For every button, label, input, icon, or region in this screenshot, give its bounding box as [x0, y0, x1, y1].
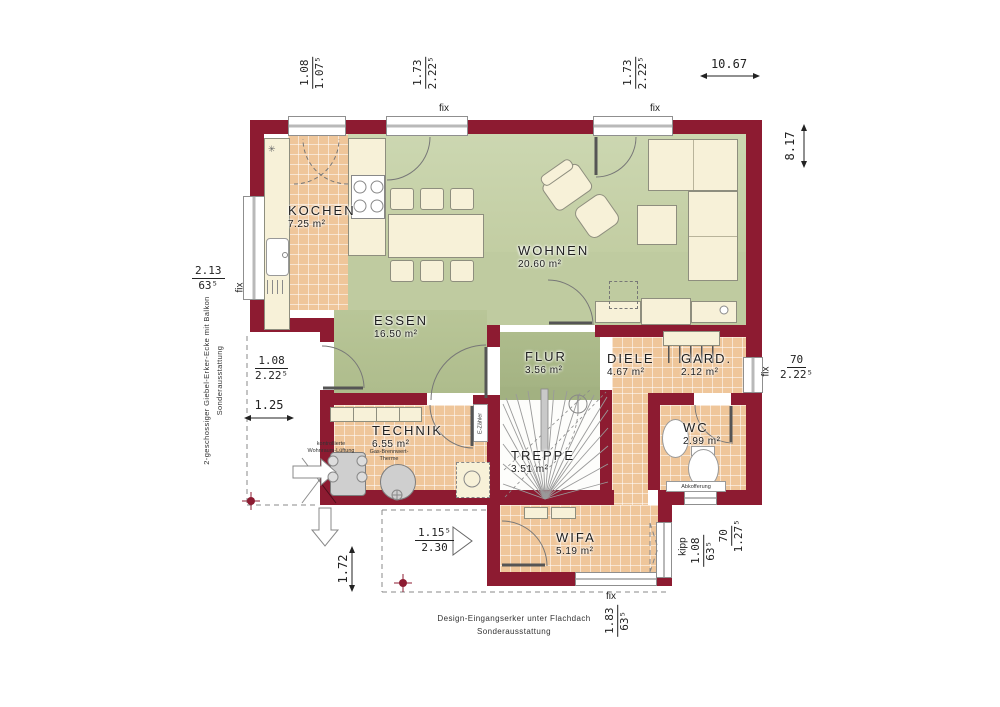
- electric-meter-label: E-Zähler: [478, 404, 485, 442]
- wall-left-lower-a: [320, 332, 334, 342]
- ventilation-label: kontrollierte Wohnraum-Lüftung: [303, 441, 359, 455]
- sideboard-center: [641, 298, 691, 325]
- wall-bottom-treppe: [487, 490, 614, 505]
- duct-box: Abkofferung: [666, 481, 726, 492]
- room-label-technik: TECHNIK 6.55 m²: [372, 423, 443, 450]
- wifa-cabinet: [524, 507, 548, 519]
- dining-chair: [450, 260, 474, 282]
- kitchen-sink: [266, 238, 289, 276]
- window-kipp-wifa: [656, 522, 672, 578]
- wall-right-a: [746, 120, 762, 358]
- window-fix-left: [243, 196, 265, 300]
- glazing-kipp-wifa: kipp: [678, 530, 689, 564]
- wall-wifa-right-a: [658, 505, 672, 523]
- coat-rack-shelf: [663, 331, 720, 346]
- room-label-flur: FLUR 3.56 m²: [525, 349, 567, 376]
- wall-wc-top-b: [731, 393, 746, 405]
- kitchen-counter-left: [264, 138, 290, 330]
- glazing-fix-left: fix: [235, 274, 246, 302]
- dining-chair: [420, 188, 444, 210]
- dim-left-window: 2.13 63⁵: [192, 264, 225, 294]
- dim-wifa-side-window: 1.08 63⁵: [689, 533, 719, 569]
- wall-treppe-right: [600, 390, 612, 490]
- dishwasher-vent-lines: [267, 280, 287, 294]
- dim-front-offset: 1.72: [336, 549, 350, 589]
- room-label-treppe: TREPPE 3.51 m²: [511, 448, 575, 475]
- dim-right-window: 70 2.22⁵: [777, 353, 816, 383]
- dim-total-height: 8.17: [783, 126, 797, 166]
- glazing-fix-right: fix: [761, 358, 772, 386]
- room-label-essen: ESSEN 16.50 m²: [374, 313, 428, 340]
- survey-points: [242, 492, 412, 592]
- room-treppe-floor: [500, 400, 600, 490]
- window-wc-bottom: [684, 491, 717, 505]
- window-fix-top-left: [386, 116, 468, 136]
- room-label-gard: GARD. 2.12 m²: [681, 351, 732, 378]
- kitchen-symbol-icon: ✳: [268, 144, 276, 155]
- wall-wc-top-a: [648, 393, 694, 405]
- dim-terrace-door: 1.08 2.22⁵: [252, 354, 291, 384]
- boiler-label: Gas-Brennwert-Therme: [366, 449, 412, 463]
- dining-table: [388, 214, 484, 258]
- washing-machine: [456, 462, 490, 498]
- room-label-kochen: KOCHEN 7.25 m²: [288, 203, 356, 230]
- room-label-diele: DIELE 4.67 m²: [607, 351, 655, 378]
- glazing-fix-wifa-front: fix: [594, 591, 628, 602]
- wall-wifa-bottom-a: [487, 572, 575, 586]
- wifa-cabinet: [551, 507, 576, 519]
- dining-chair: [420, 260, 444, 282]
- glazing-fix-top-right: fix: [637, 103, 673, 114]
- wall-right-b: [746, 392, 762, 505]
- electric-meter-box: E-Zähler: [473, 404, 488, 442]
- dim-top-fix-left: 1.73 2.22⁵: [411, 55, 441, 91]
- wall-technik-top: [334, 393, 427, 405]
- side-note: 2-geschossiger Giebel-Erker-Ecke mit Bal…: [201, 293, 227, 468]
- wall-bottom-right-b: [717, 490, 762, 505]
- sofa-right: [688, 191, 738, 281]
- duct-label: Abkofferung: [667, 484, 725, 491]
- corridor-floor: [612, 393, 648, 505]
- dim-top-fix-right: 1.73 2.22⁵: [621, 55, 651, 91]
- dining-chair: [390, 188, 414, 210]
- dining-chair: [390, 260, 414, 282]
- dim-entry-door: 1.15⁵ 2.30: [415, 526, 454, 556]
- wall-bottom-right-a: [658, 490, 684, 505]
- technik-shelf: [330, 407, 422, 422]
- sofa-top: [648, 139, 738, 191]
- dim-left-offset: 1.25: [244, 398, 294, 412]
- dim-wifa-front-window: 1.83 63⁵: [603, 603, 633, 639]
- arrow-down-icon: [312, 508, 338, 546]
- dim-wifa-corner: 70 1.27⁵: [717, 518, 747, 554]
- ventilation-unit: [330, 452, 366, 496]
- stove: [351, 175, 385, 219]
- coffee-table: [637, 205, 677, 245]
- bottom-note: Design-Eingangserker unter Flachdach Son…: [428, 613, 600, 639]
- wall-flur-stub: [487, 325, 500, 347]
- gas-boiler: [380, 464, 416, 500]
- dim-total-width: 10.67: [698, 57, 760, 71]
- dining-chair: [450, 188, 474, 210]
- entry-arrow-icon: [453, 527, 472, 555]
- tv-outline: [609, 281, 638, 309]
- room-label-wifa: WIFA 5.19 m²: [556, 530, 596, 557]
- window-kitchen-top: [288, 116, 346, 136]
- wall-kitchen-bottom: [250, 318, 334, 332]
- window-fix-top-right: [593, 116, 673, 136]
- glazing-fix-top-left: fix: [426, 103, 462, 114]
- room-label-wc: WC 2.99 m²: [683, 420, 720, 447]
- wall-wifa-right-b: [658, 577, 672, 586]
- dim-top-kitchen-window: 1.08 1.07⁵: [298, 55, 328, 91]
- wall-wc-left: [648, 400, 660, 490]
- floor-plan: ✳ Abkofferung E-Zähler: [0, 0, 1000, 707]
- window-fix-wifa: [575, 572, 657, 586]
- sideboard-right: [691, 301, 737, 323]
- room-label-wohnen: WOHNEN 20.60 m²: [518, 243, 589, 270]
